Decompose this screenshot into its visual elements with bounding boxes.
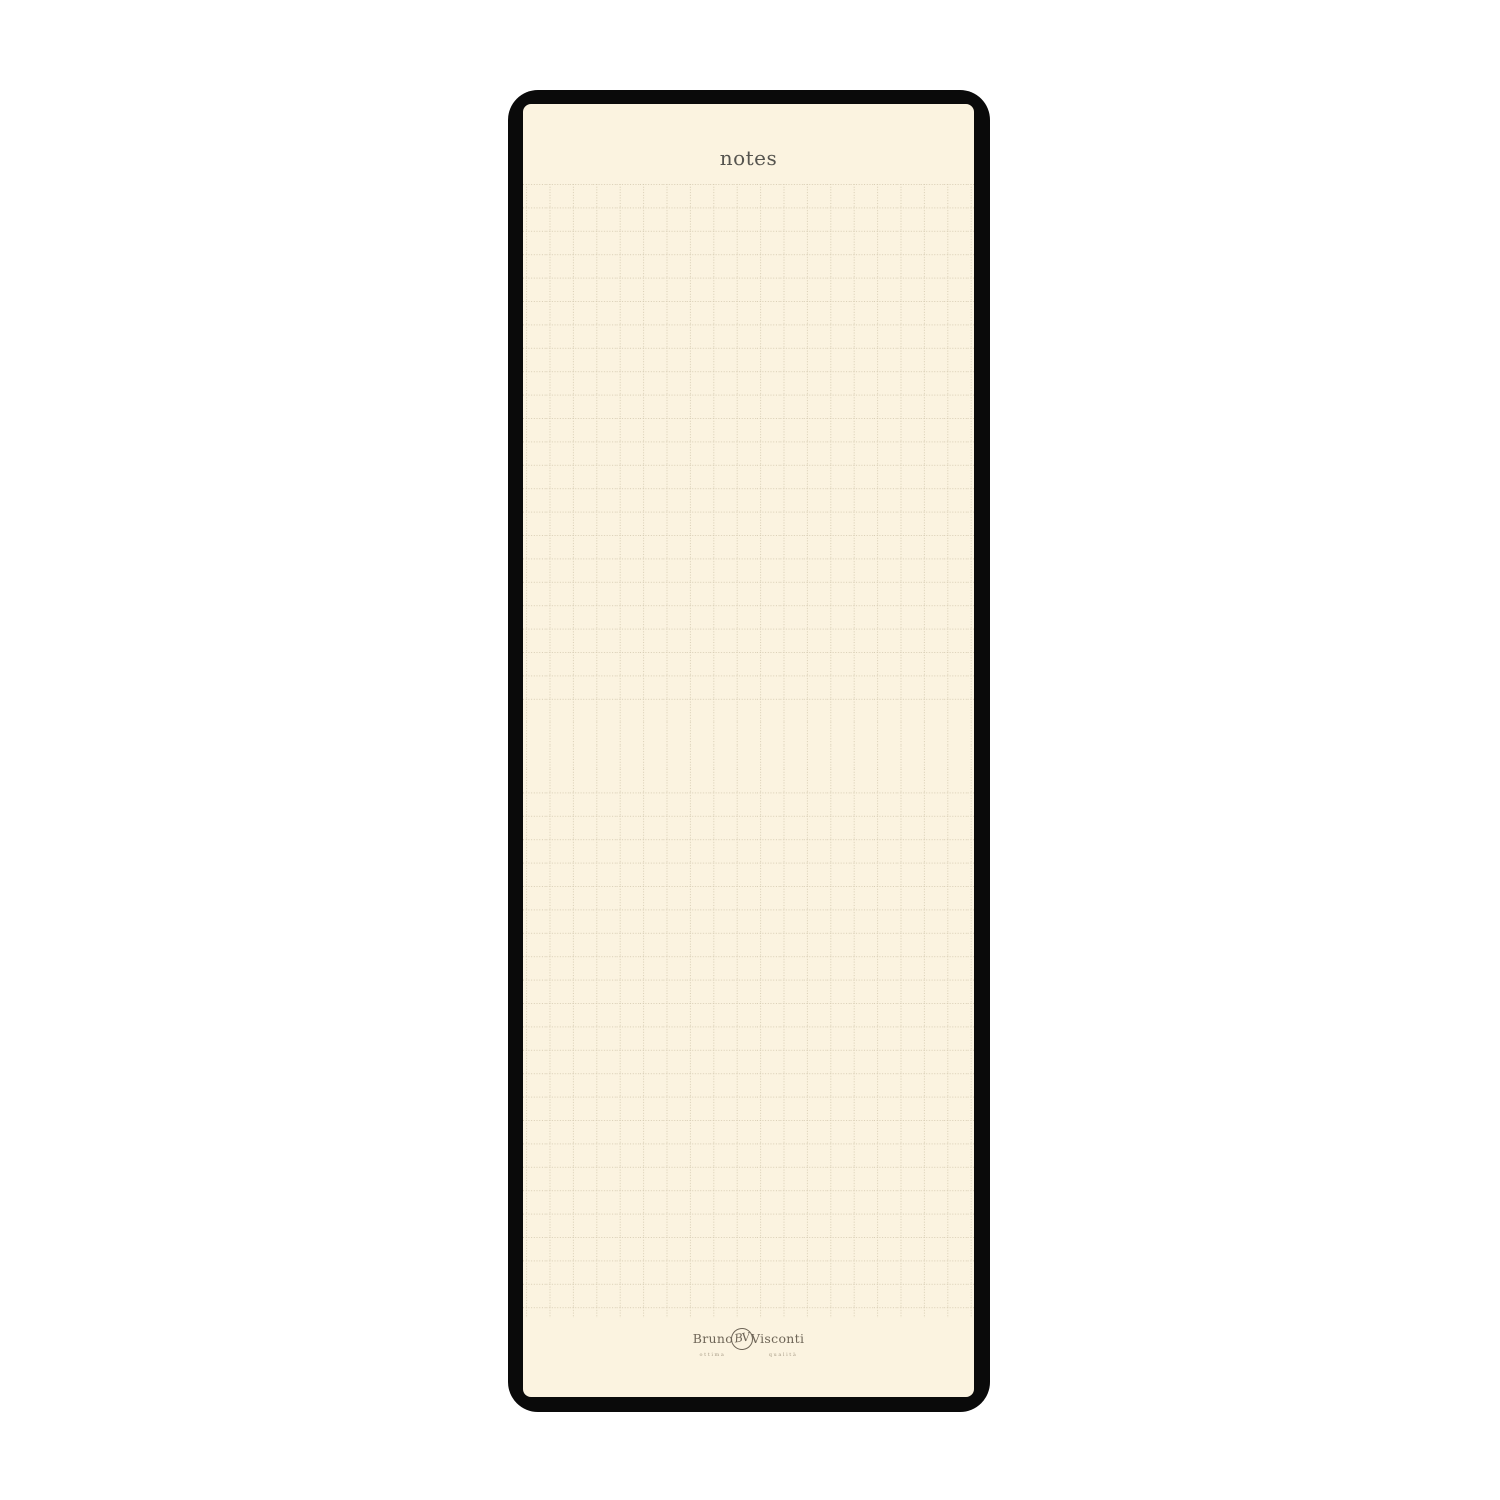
notepad-paper: notes Bruno BV Visconti <box>523 104 974 1397</box>
page-background: { "notepad": { "title": "notes", "colors… <box>0 0 1500 1500</box>
brand-logo: Bruno BV Visconti ottima qualità <box>523 1328 974 1358</box>
brand-tagline-left: ottima <box>700 1352 726 1358</box>
grid-horizontal-lines-lower <box>523 792 974 1318</box>
brand-name-row: Bruno BV Visconti <box>693 1328 805 1350</box>
notepad-cover: notes Bruno BV Visconti <box>508 90 990 1412</box>
brand-tagline-right: qualità <box>769 1352 798 1358</box>
brand-monogram-letters: BV <box>734 1332 750 1345</box>
dot-grid <box>523 184 974 1318</box>
grid-horizontal-lines-upper <box>523 184 974 704</box>
notes-title: notes <box>523 146 974 170</box>
brand-last-name: Visconti <box>751 1333 804 1346</box>
brand-first-name: Bruno <box>693 1333 733 1346</box>
brand-tagline: ottima qualità <box>700 1352 798 1358</box>
